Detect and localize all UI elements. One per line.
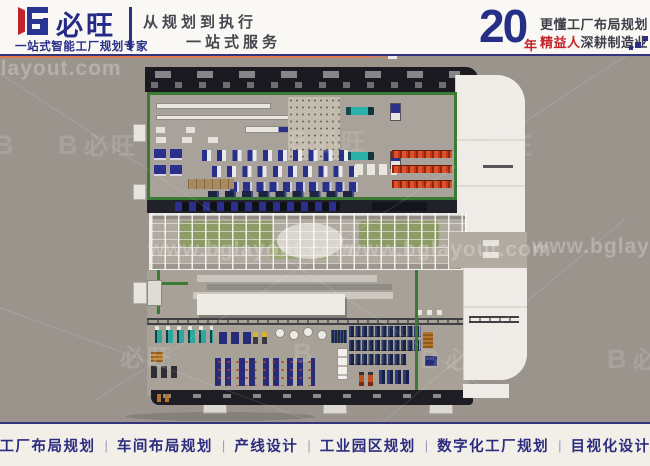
loading-dock xyxy=(429,405,453,414)
factory-roof-band xyxy=(145,67,478,92)
truck xyxy=(337,348,348,380)
floor-mats xyxy=(188,179,234,189)
pixel-deco-icon xyxy=(643,36,648,41)
blue-rack-low xyxy=(379,370,411,384)
roof-vents xyxy=(151,82,473,88)
blue-racking xyxy=(349,354,407,365)
office-building-bottom-annex xyxy=(463,384,509,398)
yellow-post xyxy=(262,332,267,344)
ground-shadow xyxy=(125,412,315,421)
teal-machine xyxy=(346,107,374,115)
footer-services-bar: 工厂布局规划 | 车间布局规划 | 产线设计 | 工业园区规划 | 数字化工厂规… xyxy=(0,424,650,466)
workstation-row xyxy=(212,166,360,177)
footer-item-digital-factory: 数字化工厂规划 xyxy=(437,435,549,456)
side-dock xyxy=(133,184,146,200)
panel-unit xyxy=(331,330,347,343)
watermark-url: www.bglayout.com xyxy=(0,57,122,81)
workstation-row xyxy=(208,191,360,200)
watermark-logo: B 必旺 xyxy=(455,126,535,161)
years-tagline-1: 更懂工厂布局规划 xyxy=(540,14,648,33)
yellow-post xyxy=(253,332,258,344)
footer-separator: | xyxy=(425,438,428,453)
navy-machine xyxy=(170,165,182,176)
slogan-line2: 一站式服务 xyxy=(186,31,281,52)
footer-item-industrial-park: 工业园区规划 xyxy=(320,435,416,456)
orange-post xyxy=(368,372,373,386)
main-canvas: www.bglayout.com www.bglayout.com www.bg… xyxy=(0,56,650,422)
header-bar: 必旺 一站式智能工厂规划专家 从规划到执行 一站式服务 20 年 更懂工厂布局规… xyxy=(0,0,650,54)
white-markers xyxy=(417,310,447,315)
green-wall xyxy=(415,270,418,396)
side-dock xyxy=(133,282,147,304)
watermark-logo: B 必旺 xyxy=(607,340,650,375)
watermark-logo: B xyxy=(0,130,16,161)
footer-separator: | xyxy=(307,438,310,453)
machine-line xyxy=(156,103,271,109)
header-divider xyxy=(129,7,132,49)
roof-strip xyxy=(207,284,392,290)
warehouse-hall xyxy=(147,270,469,396)
footer-separator: | xyxy=(105,438,108,453)
years-tagline-highlight: 精益人 xyxy=(540,35,581,50)
machine-blocks xyxy=(156,127,216,133)
inner-building xyxy=(197,294,345,315)
watermark-logo: B 必旺 xyxy=(288,122,368,157)
footer-item-visual-design: 目视化设计 xyxy=(570,435,650,456)
storage-tank xyxy=(275,328,285,338)
rail-line-right xyxy=(469,316,519,323)
blue-racking xyxy=(349,326,421,337)
footer-item-factory-layout: 工厂布局规划 xyxy=(0,435,96,456)
navy-bins xyxy=(219,332,251,344)
footer-separator: | xyxy=(558,438,561,453)
green-wall xyxy=(160,282,188,285)
footer-separator: | xyxy=(222,438,225,453)
years-unit: 年 xyxy=(524,35,537,54)
orange-post xyxy=(359,372,364,386)
factory-south-band xyxy=(151,390,473,405)
orange-racking xyxy=(392,165,452,173)
storage-tank xyxy=(317,330,327,340)
band-orange-units xyxy=(157,394,171,402)
storage-tank xyxy=(303,327,313,337)
cabinet-row xyxy=(355,164,397,175)
logo-red-stroke xyxy=(18,7,25,35)
years-number: 20 xyxy=(479,3,526,49)
side-structure xyxy=(147,280,162,306)
header-separator-orange xyxy=(0,56,650,58)
machine-line xyxy=(156,115,291,120)
header-separator-notch xyxy=(388,56,397,59)
machine-blocks xyxy=(156,137,234,143)
logo-blue-glyph xyxy=(27,7,48,35)
roof-vents xyxy=(155,71,460,78)
footer-item-workshop-layout: 车间布局规划 xyxy=(117,435,213,456)
blue-racking xyxy=(349,340,421,351)
poster-page: 必旺 一站式智能工厂规划专家 从规划到执行 一站式服务 20 年 更懂工厂布局规… xyxy=(0,0,650,466)
navy-machine xyxy=(154,149,166,160)
watermark-logo: B xyxy=(293,338,315,369)
watermark-url: www.bglayout.com xyxy=(345,238,552,262)
navy-machine xyxy=(170,149,182,160)
loading-dock xyxy=(323,405,347,414)
orange-racking xyxy=(392,150,452,158)
brand-logo-icon xyxy=(18,7,50,35)
equipment-band xyxy=(147,200,457,213)
footer-item-line-design: 产线设计 xyxy=(234,435,298,456)
rail-line xyxy=(147,318,469,325)
control-unit xyxy=(390,103,401,121)
office-roof-detail xyxy=(483,165,513,168)
pixel-deco-icon xyxy=(635,42,641,48)
pixel-deco-icon xyxy=(629,46,633,50)
slogan-line1: 从规划到执行 xyxy=(143,11,257,32)
